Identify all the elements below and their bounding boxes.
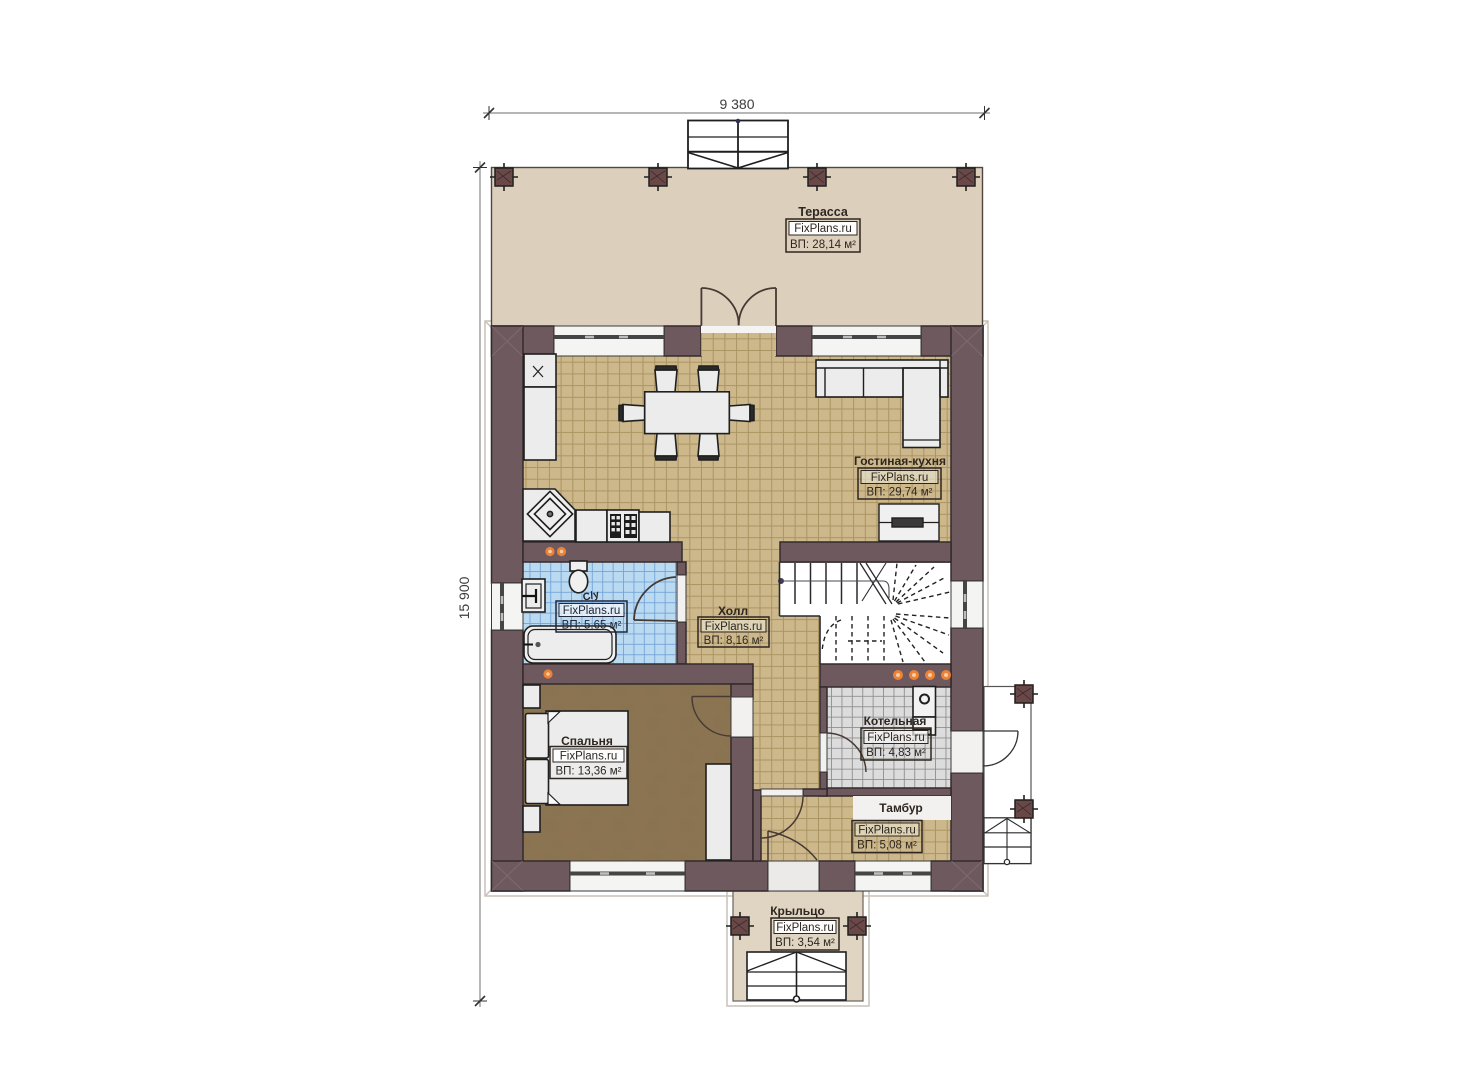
svg-text:FixPlans.ru: FixPlans.ru [705, 621, 763, 633]
svg-text:ВП: 8,16 м²: ВП: 8,16 м² [704, 635, 764, 647]
svg-text:ВП: 4,83 м²: ВП: 4,83 м² [866, 747, 926, 759]
svg-text:FixPlans.ru: FixPlans.ru [560, 751, 618, 763]
svg-text:FixPlans.ru: FixPlans.ru [563, 605, 621, 617]
svg-text:Холл: Холл [718, 604, 748, 618]
svg-text:ВП: 28,14 м²: ВП: 28,14 м² [790, 239, 856, 251]
svg-text:FixPlans.ru: FixPlans.ru [794, 223, 852, 235]
svg-text:Котельная: Котельная [864, 714, 927, 728]
svg-text:15 900: 15 900 [456, 576, 472, 619]
svg-text:Терасса: Терасса [798, 205, 849, 219]
svg-text:ВП: 13,36 м²: ВП: 13,36 м² [555, 766, 621, 778]
svg-text:Гостиная-кухня: Гостиная-кухня [854, 454, 946, 468]
svg-text:Тамбур: Тамбур [879, 801, 923, 815]
svg-text:9 380: 9 380 [719, 96, 754, 112]
svg-text:FixPlans.ru: FixPlans.ru [871, 472, 929, 484]
svg-text:ВП: 29,74 м²: ВП: 29,74 м² [866, 487, 932, 499]
svg-text:FixPlans.ru: FixPlans.ru [776, 922, 834, 934]
svg-text:ВП: 3,54 м²: ВП: 3,54 м² [775, 937, 835, 949]
svg-text:ВП: 5,65 м²: ВП: 5,65 м² [562, 620, 622, 632]
svg-text:ВП: 5,08 м²: ВП: 5,08 м² [857, 840, 917, 852]
svg-text:Крыльцо: Крыльцо [770, 904, 825, 918]
svg-text:FixPlans.ru: FixPlans.ru [867, 732, 925, 744]
svg-text:FixPlans.ru: FixPlans.ru [858, 825, 916, 837]
